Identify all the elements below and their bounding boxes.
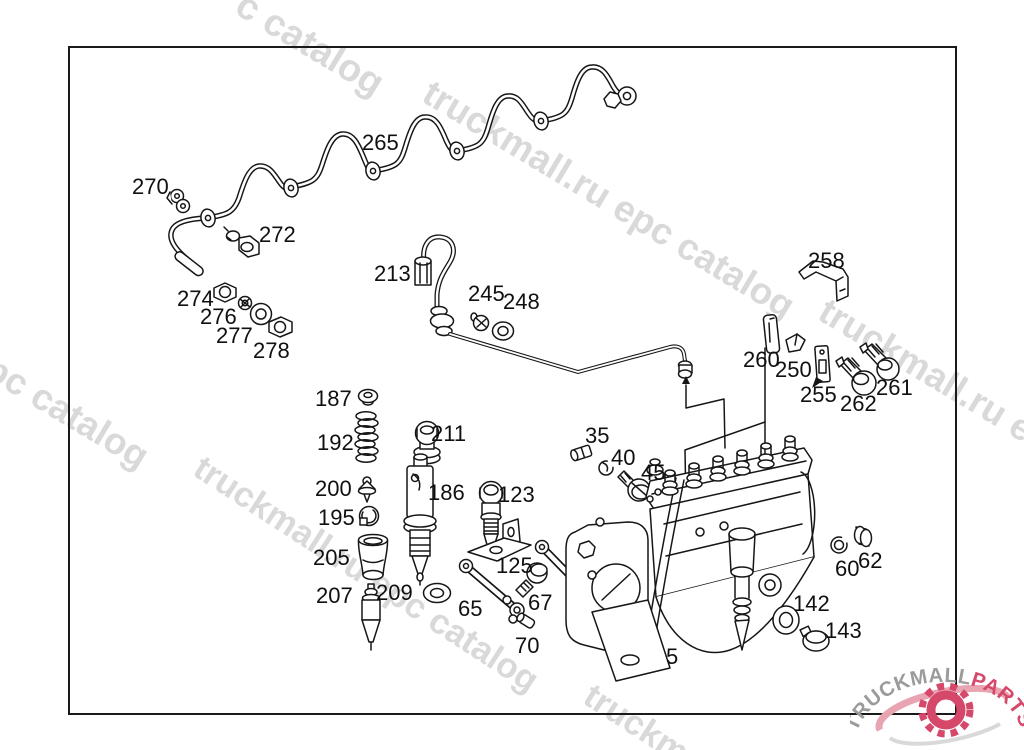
part-label-5: 5: [666, 646, 678, 668]
part-label-65: 65: [458, 598, 482, 620]
part-label-278: 278: [253, 340, 290, 362]
part-label-248: 248: [503, 291, 540, 313]
part-label-45: 45: [641, 462, 665, 484]
part-label-142: 142: [793, 593, 830, 615]
part-label-255: 255: [800, 384, 837, 406]
part-label-250: 250: [775, 359, 812, 381]
logo-gear-icon: [922, 686, 970, 734]
part-label-211: 211: [431, 423, 466, 445]
part-label-209: 209: [376, 582, 413, 604]
part-label-195: 195: [318, 507, 355, 529]
part-label-60: 60: [835, 558, 859, 580]
part-label-125: 125: [496, 555, 533, 577]
part-label-277: 277: [216, 325, 253, 347]
truckmall-parts-logo: TRUCKMALLPARTS: [850, 638, 1024, 750]
part-label-187: 187: [315, 388, 352, 410]
part-label-258: 258: [808, 250, 845, 272]
part-label-272: 272: [259, 224, 296, 246]
logo-text-red: PARTS: [968, 668, 1024, 731]
part-label-62: 62: [858, 550, 882, 572]
part-label-123: 123: [498, 484, 535, 506]
part-label-35: 35: [585, 425, 609, 447]
part-label-245: 245: [468, 283, 505, 305]
part-label-261: 261: [876, 377, 913, 399]
part-label-213: 213: [374, 263, 411, 285]
part-label-207: 207: [316, 585, 353, 607]
part-label-186: 186: [428, 482, 465, 504]
part-label-205: 205: [313, 547, 350, 569]
part-label-270: 270: [132, 176, 169, 198]
part-label-192: 192: [317, 432, 354, 454]
part-label-200: 200: [315, 478, 352, 500]
parts-diagram-page: c catalogtruckmall.ru epc catalogtruckma…: [0, 0, 1024, 750]
part-label-67: 67: [528, 592, 552, 614]
part-label-70: 70: [515, 635, 539, 657]
part-label-265: 265: [362, 132, 399, 154]
part-label-40: 40: [611, 447, 635, 469]
part-label-262: 262: [840, 393, 877, 415]
